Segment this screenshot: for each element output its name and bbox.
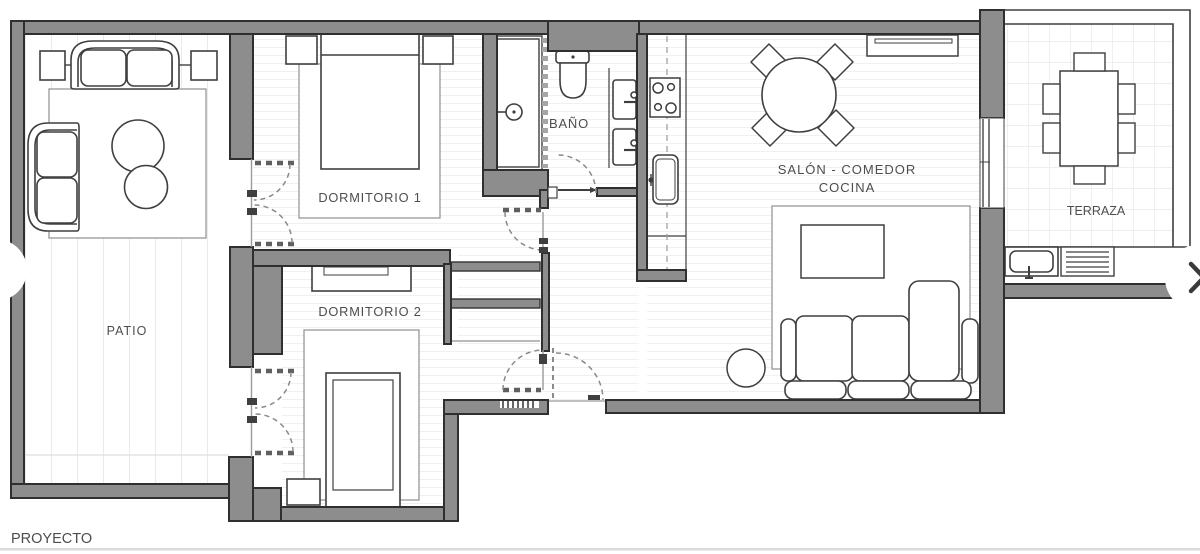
svg-text:DORMITORIO 1: DORMITORIO 1: [318, 190, 421, 205]
svg-text:DORMITORIO 2: DORMITORIO 2: [318, 304, 421, 319]
svg-text:PROYECTO: PROYECTO: [11, 531, 92, 547]
svg-text:TERRAZA: TERRAZA: [1067, 204, 1126, 218]
svg-text:BAÑO: BAÑO: [549, 116, 589, 131]
svg-text:PATIO: PATIO: [107, 324, 148, 338]
svg-text:COCINA: COCINA: [819, 180, 876, 195]
svg-text:SALÓN - COMEDOR: SALÓN - COMEDOR: [778, 162, 917, 177]
